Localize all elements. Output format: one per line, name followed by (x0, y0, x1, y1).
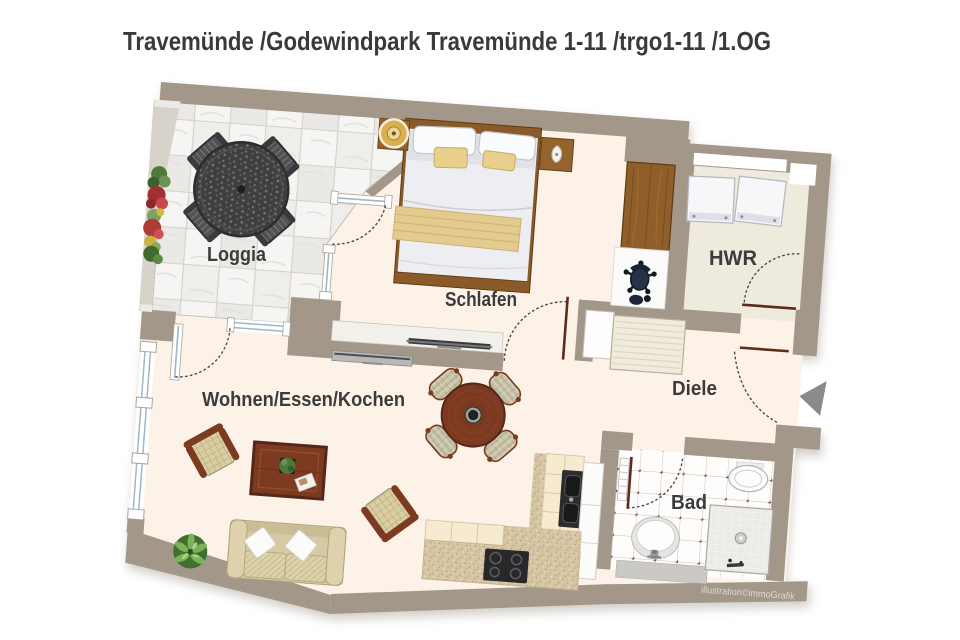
svg-text:Loggia: Loggia (207, 244, 267, 266)
svg-text:HWR: HWR (709, 247, 757, 270)
svg-text:Wohnen/Essen/Kochen: Wohnen/Essen/Kochen (202, 389, 405, 411)
svg-text:Bad: Bad (671, 492, 707, 514)
svg-text:Schlafen: Schlafen (445, 289, 517, 311)
svg-text:Diele: Diele (672, 378, 717, 400)
svg-text:Travemünde /Godewindpark Trave: Travemünde /Godewindpark Travemünde 1-11… (123, 26, 771, 56)
